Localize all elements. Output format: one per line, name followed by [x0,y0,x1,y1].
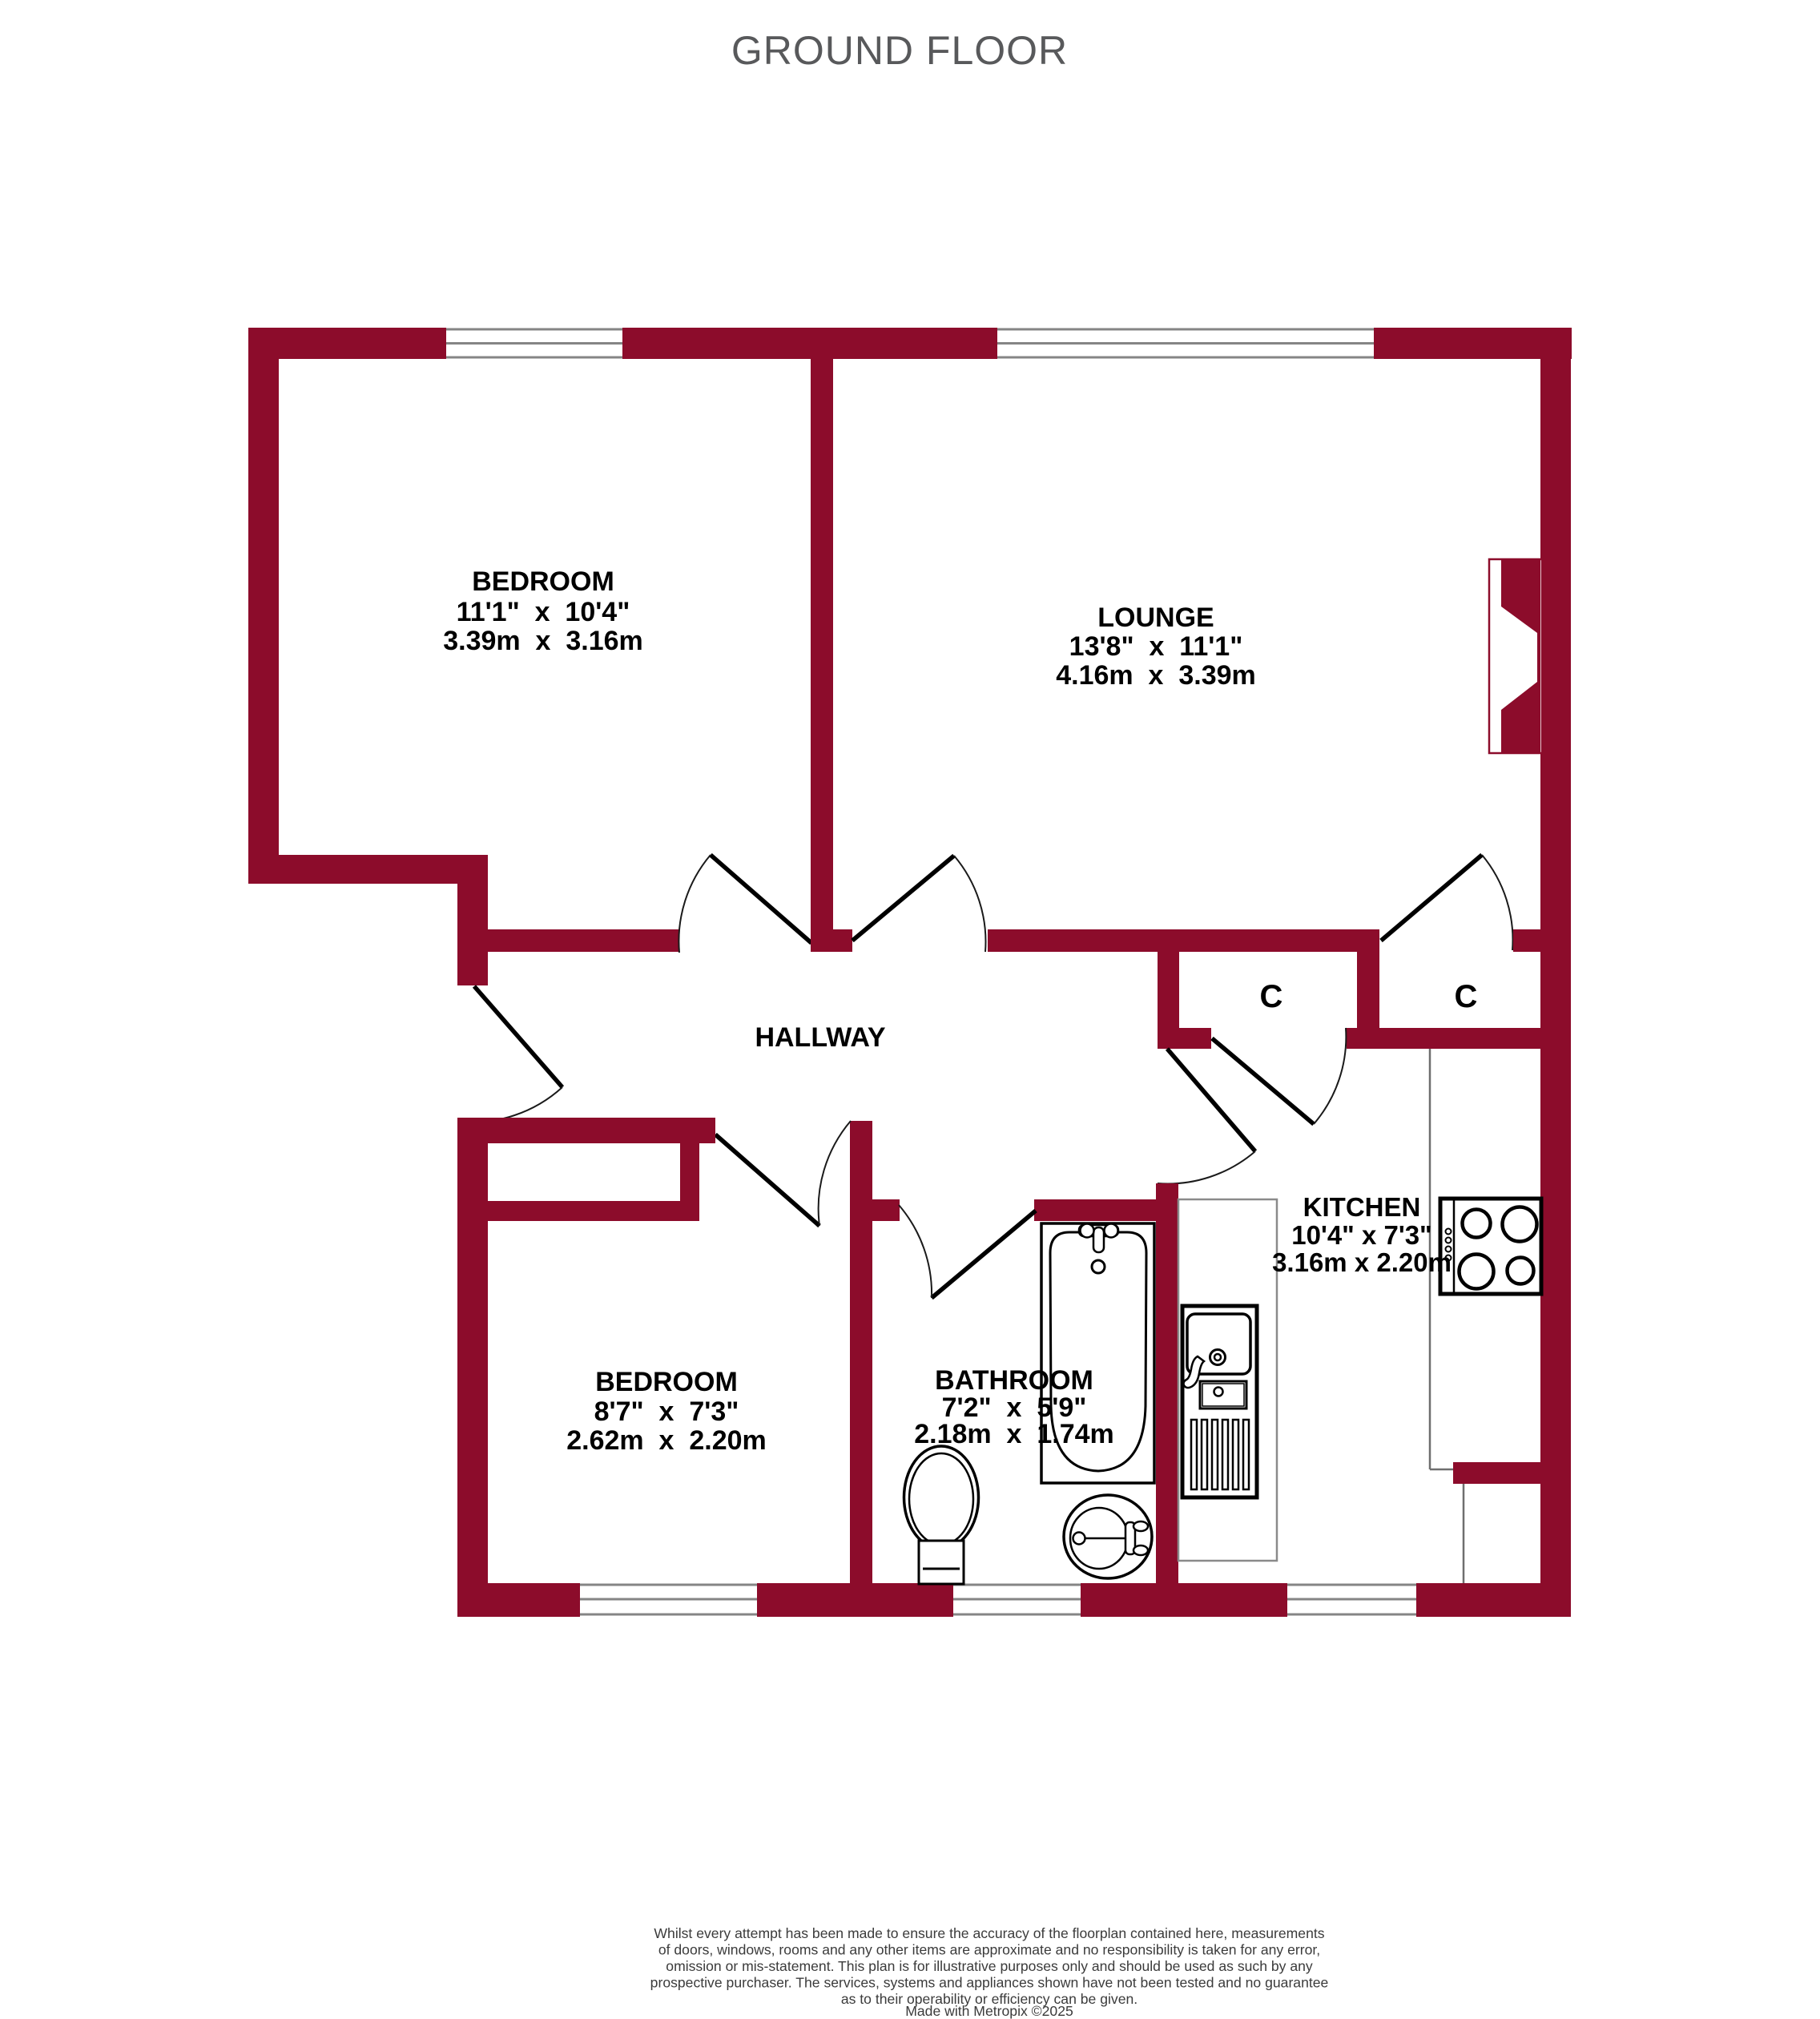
svg-text:BEDROOM: BEDROOM [472,566,614,597]
svg-text:C: C [1260,979,1283,1014]
svg-text:omission or mis-statement. Thi: omission or mis-statement. This plan is … [666,1958,1313,1974]
svg-text:Made with Metropix ©2025: Made with Metropix ©2025 [905,2003,1073,2019]
svg-text:13'8" x 11'1": 13'8" x 11'1" [1069,631,1243,662]
svg-text:LOUNGE: LOUNGE [1097,602,1214,633]
svg-text:10'4" x 7'3": 10'4" x 7'3" [1291,1220,1431,1250]
svg-text:4.16m x 3.39m: 4.16m x 3.39m [1056,660,1256,691]
svg-text:3.16m x 2.20m: 3.16m x 2.20m [1272,1247,1452,1277]
svg-text:11'1" x 10'4": 11'1" x 10'4" [457,597,630,627]
svg-text:prospective purchaser. The ser: prospective purchaser. The services, sys… [650,1975,1329,1991]
svg-text:3.39m x 3.16m: 3.39m x 3.16m [443,626,643,656]
svg-text:BATHROOM: BATHROOM [935,1365,1093,1396]
svg-text:2.18m x 1.74m: 2.18m x 1.74m [914,1419,1114,1449]
svg-text:C: C [1455,979,1478,1014]
svg-text:2.62m x 2.20m: 2.62m x 2.20m [566,1425,767,1456]
svg-text:KITCHEN: KITCHEN [1303,1192,1421,1222]
svg-text:GROUND FLOOR: GROUND FLOOR [731,28,1068,73]
svg-text:8'7" x 7'3": 8'7" x 7'3" [594,1396,739,1427]
svg-text:Whilst every attempt has been: Whilst every attempt has been made to en… [654,1925,1324,1941]
svg-text:BEDROOM: BEDROOM [595,1367,738,1397]
svg-text:HALLWAY: HALLWAY [755,1022,885,1053]
svg-text:of doors, windows, rooms and a: of doors, windows, rooms and any other i… [658,1942,1320,1958]
